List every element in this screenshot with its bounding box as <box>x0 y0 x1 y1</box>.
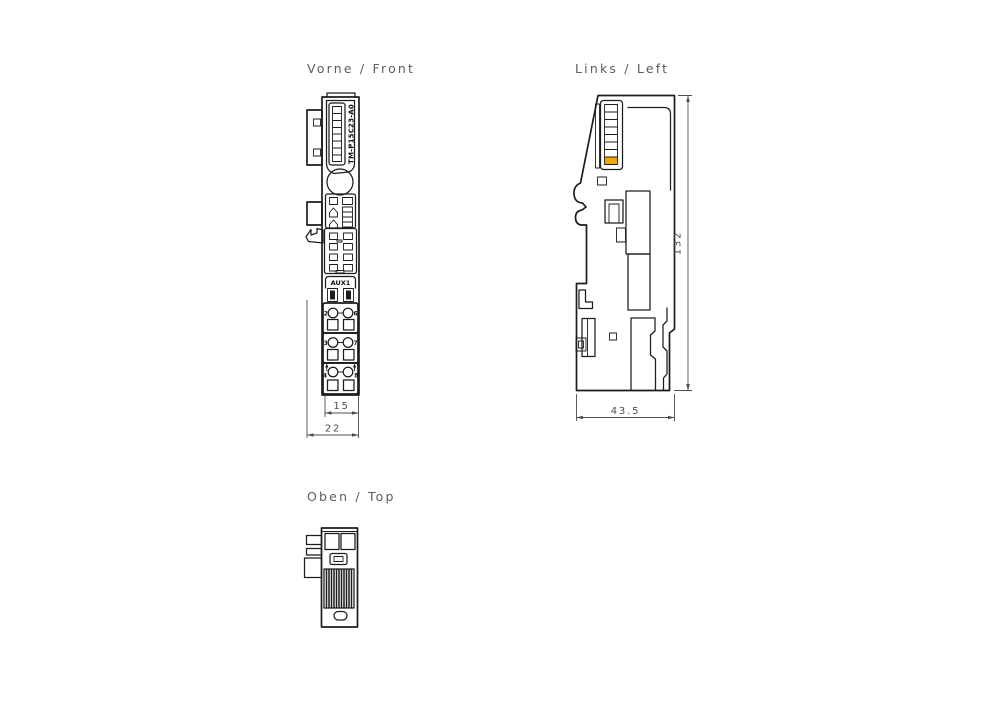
front-view: TM-P15C23-A0 AUX1 <box>306 93 359 438</box>
left-view-title: Links / Left <box>575 61 669 76</box>
plug-socket <box>325 534 339 550</box>
terminal-opening <box>344 320 355 331</box>
dim-value-132: 132 <box>673 231 684 256</box>
dimension-height: 132 <box>673 96 693 391</box>
contact-square <box>330 265 338 272</box>
dimension-total-width: 22 <box>307 424 359 437</box>
clamp-block <box>605 200 623 223</box>
ladder-edge-strip <box>596 104 600 168</box>
terminal-number: 4 <box>323 374 327 380</box>
top-view-title: Oben / Top <box>307 489 396 504</box>
stepped-contour <box>663 308 667 390</box>
terminal-opening <box>344 350 355 361</box>
terminal-opening <box>328 320 339 331</box>
housing-profile <box>574 96 675 391</box>
aux-contact-fill <box>330 291 335 300</box>
side-ladder-rungs <box>605 112 618 157</box>
house-contact-icon <box>330 220 338 228</box>
terminal-row <box>323 333 358 363</box>
dimension-depth: 43.5 <box>577 394 675 421</box>
contact-square <box>330 244 338 251</box>
dim-value-15: 15 <box>333 401 349 412</box>
terminal-circle <box>328 367 338 377</box>
house-contact-icon <box>330 208 338 217</box>
dim-value-22: 22 <box>325 424 341 435</box>
terminal-circle <box>343 367 353 377</box>
contact-square <box>343 198 353 205</box>
latch-window-inner <box>579 341 584 348</box>
drawing-sheet: Vorne / Front Links / Left Oben / Top TM… <box>0 0 1000 706</box>
center-dash <box>337 240 342 242</box>
terminal-opening <box>328 350 339 361</box>
vent-grille-stripes <box>327 570 352 608</box>
bottom-oval-slot <box>334 612 347 621</box>
front-ladder-rungs <box>333 114 342 156</box>
contact-square <box>344 265 353 272</box>
contact-square <box>330 233 338 240</box>
small-square-hole <box>610 333 617 340</box>
plug-hole-icon <box>314 119 321 126</box>
terminal-opening <box>328 380 339 391</box>
module-label: TM-P15C23-A0 <box>348 104 356 164</box>
plug-socket <box>341 534 355 550</box>
side-slot <box>617 228 626 242</box>
center-block-upper <box>626 191 650 254</box>
terminal-number: 8 <box>354 374 358 380</box>
contact-square <box>344 233 353 240</box>
contact-square <box>330 254 338 261</box>
connector-block-a <box>326 194 356 228</box>
terminal-row <box>323 363 358 394</box>
side-tab-large <box>305 558 322 578</box>
dimension-terminal-width: 15 <box>307 300 359 438</box>
latch-window <box>576 338 586 351</box>
terminal-circle <box>343 338 353 348</box>
stepped-contour <box>651 318 656 390</box>
release-slot-frame <box>330 554 347 565</box>
plug-hole-icon <box>314 149 321 156</box>
terminal-circle <box>343 308 353 318</box>
contact-strip-dividers <box>343 212 353 222</box>
top-view <box>305 528 358 627</box>
upper-left-plug <box>307 110 322 165</box>
middle-left-tab <box>307 202 322 225</box>
ladder-accent-segment <box>605 157 617 165</box>
terminal-circle <box>328 338 338 348</box>
contact-square <box>344 254 353 261</box>
terminal-number: 2 <box>324 312 328 318</box>
contact-square <box>330 198 338 205</box>
clamp-inner <box>609 204 619 223</box>
contact-square <box>344 244 353 251</box>
terminal-number: 3 <box>324 341 328 347</box>
bottom-dash <box>336 271 344 274</box>
front-view-title: Vorne / Front <box>307 61 415 76</box>
center-block-lower <box>628 254 650 310</box>
latch-hook-icon <box>306 229 323 244</box>
drawing-canvas: Vorne / Front Links / Left Oben / Top TM… <box>0 0 1000 706</box>
terminal-row <box>323 303 358 333</box>
terminal-number: 6 <box>353 312 357 318</box>
aux-contact-fill <box>346 291 351 300</box>
dim-value-43-5: 43.5 <box>611 406 640 417</box>
din-latch-bracket <box>579 290 593 309</box>
stepped-contour <box>631 318 655 390</box>
release-slot <box>334 557 343 562</box>
side-tab <box>307 536 322 545</box>
aux-label: AUX1 <box>331 279 351 287</box>
terminal-number: 7 <box>353 341 357 347</box>
terminal-circle <box>328 308 338 318</box>
inner-housing-contour <box>628 108 671 191</box>
square-hole <box>598 177 607 185</box>
left-view: 132 43.5 <box>574 96 692 422</box>
side-tab <box>307 549 322 556</box>
terminal-opening <box>344 380 355 391</box>
